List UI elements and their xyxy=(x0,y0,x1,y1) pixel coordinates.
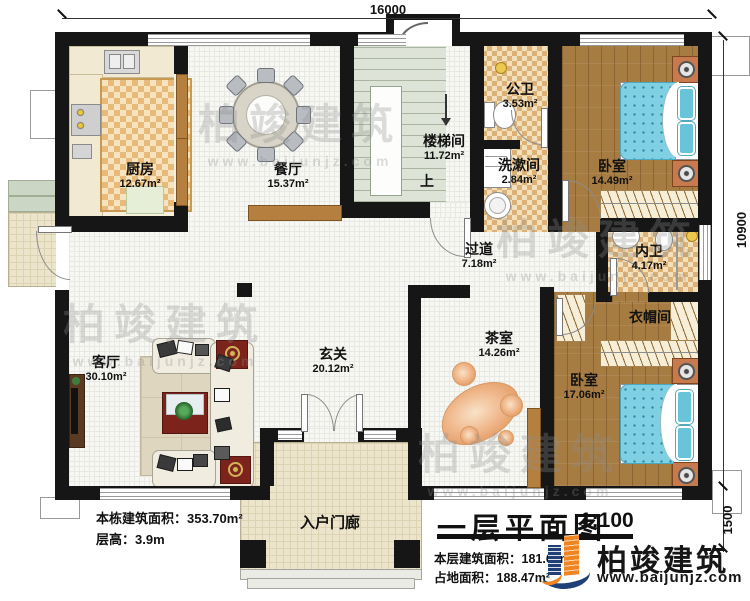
wall xyxy=(55,32,69,228)
brand-logo-icon xyxy=(540,533,594,589)
side-table xyxy=(220,456,251,484)
door-leaf xyxy=(610,258,617,296)
wall xyxy=(470,46,484,232)
sliding-door xyxy=(176,138,188,206)
porch-step xyxy=(247,578,415,589)
wall xyxy=(340,46,354,202)
rug-dot xyxy=(500,394,523,417)
wall xyxy=(482,140,520,149)
room-label-entry-hall: 玄关20.12m² xyxy=(313,347,354,375)
dimension-right: 10900 xyxy=(734,202,749,258)
entry-door-leaf xyxy=(356,394,363,432)
pillow xyxy=(676,390,693,424)
building-area-text: 本栋建筑面积：353.70m² xyxy=(96,508,243,529)
floor-patch xyxy=(430,202,470,218)
room-label-ensuite-bath: 内卫4.17m² xyxy=(632,244,667,272)
window xyxy=(699,225,711,280)
wall-pillar xyxy=(237,283,252,297)
corner-step xyxy=(40,497,80,519)
wall xyxy=(55,216,188,232)
stair-up-label: 上 xyxy=(420,174,434,190)
door-leaf xyxy=(562,180,569,222)
plan-scale: 1:100 xyxy=(580,509,634,533)
building-stats: 本栋建筑面积：353.70m² 层高：3.9m xyxy=(96,508,243,550)
room-label-entry-porch: 入户门廊 xyxy=(300,516,360,533)
wardrobe-rail xyxy=(600,352,698,353)
open-door-leaf xyxy=(527,408,541,488)
window xyxy=(580,34,684,46)
tv-icon xyxy=(71,388,78,434)
kitchen-mat xyxy=(126,186,164,214)
wall xyxy=(340,202,430,218)
porch-column xyxy=(240,540,266,568)
wall xyxy=(600,218,712,232)
pillow xyxy=(678,122,695,155)
wall xyxy=(596,232,608,292)
room-label-living-room: 客厅30.10m² xyxy=(86,355,127,383)
nightstand xyxy=(672,56,700,83)
room-label-kitchen: 厨房12.67m² xyxy=(120,162,161,190)
dimension-line xyxy=(723,40,724,490)
plant-icon xyxy=(72,377,80,385)
nightstand xyxy=(672,160,700,187)
burner-icon xyxy=(76,108,85,117)
entry-door-leaf xyxy=(301,394,308,432)
room-label-tea-room: 茶室14.26m² xyxy=(479,331,520,359)
wall xyxy=(55,290,69,500)
sink-basin xyxy=(109,54,121,69)
wall xyxy=(548,46,562,232)
floor-patch xyxy=(612,292,648,302)
room-label-bedroom2: 卧室17.06m² xyxy=(564,373,605,401)
room-label-wash-room: 洗漱间2.84m² xyxy=(498,158,540,186)
wall xyxy=(174,46,188,74)
floorplan-canvas: 厨房12.67m² 餐厅15.37m² 楼梯间11.72m² 公卫3.53m² … xyxy=(0,0,750,601)
stove-icon xyxy=(71,104,101,136)
wall xyxy=(408,285,421,428)
burner-icon xyxy=(76,121,85,130)
room-label-public-bath: 公卫3.53m² xyxy=(503,82,538,110)
side-door-leaf xyxy=(38,226,72,233)
room-label-stairwell: 楼梯间11.72m² xyxy=(423,134,465,162)
window xyxy=(586,488,682,500)
light-fixture-icon xyxy=(495,62,507,74)
side-step xyxy=(8,180,60,196)
sliding-door xyxy=(176,74,188,142)
window xyxy=(364,430,396,440)
nightstand xyxy=(672,462,700,487)
window xyxy=(100,488,230,500)
window xyxy=(278,430,302,440)
wash-basin-inner xyxy=(489,197,506,214)
wall xyxy=(408,428,422,500)
dimension-line xyxy=(62,18,712,19)
brand-url: www.baijunjz.com xyxy=(597,569,742,586)
door-leaf xyxy=(556,298,563,336)
pillow xyxy=(678,87,695,120)
window xyxy=(434,488,544,500)
room-label-dining: 餐厅15.37m² xyxy=(268,162,309,190)
rug-dot xyxy=(498,430,514,446)
door-leaf xyxy=(541,108,548,148)
wall xyxy=(540,287,554,486)
sink-basin xyxy=(123,54,135,69)
wall xyxy=(408,285,470,298)
counter-appliance xyxy=(72,144,92,159)
rug-dot xyxy=(460,426,479,445)
land-area-text: 占地面积：188.47m² xyxy=(434,567,550,586)
sideboard-cabinet xyxy=(248,205,342,221)
stair-arrow-line xyxy=(445,94,447,120)
nightstand xyxy=(672,358,700,384)
stair-arrow-head xyxy=(441,118,451,126)
room-label-bedroom1: 卧室14.49m² xyxy=(592,159,633,187)
shower-partition xyxy=(676,234,678,290)
window xyxy=(358,34,406,46)
dining-table-set xyxy=(219,68,311,160)
side-step xyxy=(8,196,60,212)
plant-icon xyxy=(175,402,193,420)
porch-column xyxy=(394,540,420,568)
rug-dot xyxy=(452,362,476,386)
room-label-corridor: 过道7.18m² xyxy=(462,242,497,270)
stair-void xyxy=(370,86,402,196)
pillow xyxy=(676,426,693,460)
wardrobe xyxy=(600,190,700,219)
floor-height-text: 层高：3.9m xyxy=(96,529,243,550)
room-label-cloakroom: 衣帽间 xyxy=(629,310,671,326)
window xyxy=(148,34,310,46)
dimension-top: 16000 xyxy=(370,2,406,17)
wall xyxy=(260,428,274,486)
wall xyxy=(648,292,698,302)
wardrobe-rail xyxy=(600,203,698,204)
